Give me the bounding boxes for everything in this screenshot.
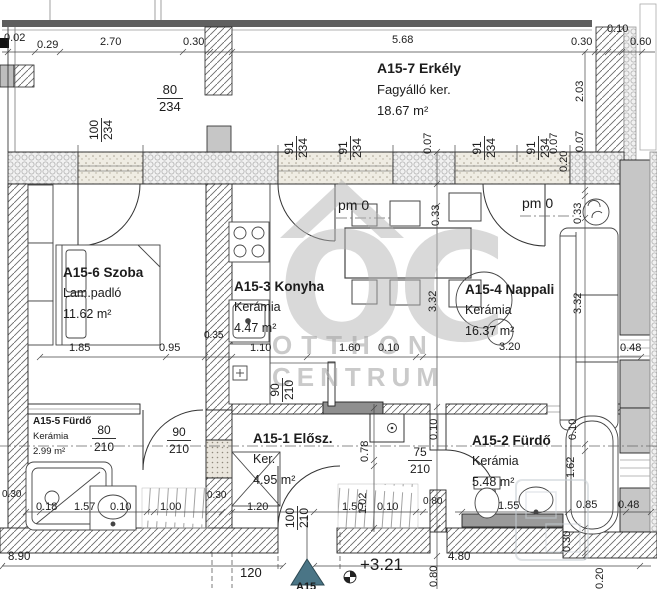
dim-label: 2.03 — [574, 81, 586, 102]
dim-label: 0.10 — [607, 23, 628, 35]
dim-label: 0.29 — [37, 39, 58, 51]
window-size-80-234: 80 234 — [157, 82, 183, 115]
dim-label: 0.10 — [567, 419, 579, 440]
room-label-furdo-b: A15-2 Fürdő Kerámia 5.48 m² — [472, 430, 551, 493]
dim-label: 1.20 — [247, 501, 268, 513]
dim-label: 0.10 — [378, 342, 399, 354]
dim-label: 0.33 — [430, 205, 442, 226]
dim-label: 3.32 — [427, 291, 439, 312]
window-size-100-234: 100 234 — [88, 118, 115, 142]
room-label-szoba: A15-6 Szoba Lam.padló 11.62 m² — [63, 262, 143, 325]
room-area: 16.37 m² — [465, 321, 554, 342]
door-size-90-210-kitchen: 90 210 — [269, 378, 296, 402]
room-finish: Ker. — [253, 449, 333, 470]
dim-label: 1.50 — [342, 501, 363, 513]
dim-total-label: 120 — [240, 565, 262, 580]
opening-width: 100 — [88, 118, 101, 142]
dim-label: 0.07 — [548, 133, 560, 154]
room-label-erkely: A15-7 Erkély Fagyálló ker. 18.67 m² — [377, 58, 461, 121]
dim-label: 0.18 — [36, 501, 57, 513]
room-area: 2.99 m² — [33, 444, 91, 459]
room-label-eloszoba: A15-1 Elősz. Ker. 4.95 m² — [253, 428, 333, 491]
dim-label: 1.57 — [74, 501, 95, 513]
room-name: A15-3 Konyha — [234, 276, 324, 297]
opening-width: 90 — [269, 378, 282, 402]
room-label-furdo-a: A15-5 Fürdő Kerámia 2.99 m² — [33, 414, 91, 459]
opening-width: 75 — [408, 444, 432, 460]
dim-label: 5.68 — [392, 34, 413, 46]
level-pm0-right: pm 0 — [522, 195, 553, 211]
opening-height: 234 — [350, 136, 364, 160]
opening-width: 91 — [525, 136, 538, 160]
opening-height: 210 — [167, 440, 191, 457]
dim-label: 3.32 — [572, 293, 584, 314]
door-size-75-210: 75 210 — [408, 444, 432, 477]
room-name: A15-7 Erkély — [377, 58, 461, 79]
dim-label: 3.20 — [499, 341, 520, 353]
room-label-nappali: A15-4 Nappali Kerámia 16.37 m² — [465, 279, 554, 342]
dim-label: 0.20 — [594, 568, 606, 589]
room-name: A15-2 Fürdő — [472, 430, 551, 451]
floor-plan-canvas: OC OTTHON CENTRUM A15-7 Erkély Fagyálló … — [0, 0, 657, 589]
dim-label: 0.10 — [428, 419, 440, 440]
dim-label: 0.07 — [574, 131, 586, 152]
watermark-line2: CENTRUM — [272, 362, 444, 393]
opening-height: 234 — [101, 118, 115, 142]
level-entry: +3.21 — [360, 555, 403, 575]
dim-label: 0.10 — [110, 501, 131, 513]
dim-label: 0.30 — [571, 36, 592, 48]
dim-label: 1.85 — [69, 342, 90, 354]
opening-height: 234 — [484, 136, 498, 160]
opening-height: 234 — [296, 136, 310, 160]
level-marker — [344, 571, 356, 583]
opening-height: 210 — [297, 506, 311, 530]
level-pm0-left: pm 0 — [338, 197, 369, 213]
room-name: A15-1 Elősz. — [253, 428, 333, 449]
dim-label: 0.07 — [422, 133, 434, 154]
window-size-91-234-3: 91 234 — [471, 136, 498, 160]
room-finish: Kerámia — [465, 300, 554, 321]
dim-label: 0.35 — [204, 330, 223, 341]
room-area: 4.47 m² — [234, 318, 324, 339]
dim-label: 0.10 — [377, 501, 398, 513]
opening-width: 80 — [92, 422, 116, 438]
room-finish: Fagyálló ker. — [377, 79, 461, 100]
dim-label: 0.80 — [428, 566, 440, 587]
dim-label: 0.60 — [630, 36, 651, 48]
dim-label: 0.80 — [423, 496, 442, 507]
section-marker-label: A15 — [296, 581, 316, 589]
room-name: A15-5 Fürdő — [33, 414, 91, 429]
dim-label: 1.62 — [565, 457, 577, 478]
dim-label: 0.85 — [576, 499, 597, 511]
dim-label: 1.10 — [250, 342, 271, 354]
opening-height: 210 — [408, 460, 432, 477]
opening-width: 90 — [167, 424, 191, 440]
dim-label: 1.60 — [339, 342, 360, 354]
furniture-bath-a — [26, 462, 208, 530]
dim-label: 0.30 — [207, 490, 226, 501]
window-size-91-234-1: 91 234 — [283, 136, 310, 160]
room-finish: Lam.padló — [63, 283, 143, 304]
dim-label: 0.30 — [561, 531, 573, 552]
dim-label: 0.33 — [572, 203, 584, 224]
room-finish: Kerámia — [33, 429, 91, 444]
dim-label: 0.30 — [183, 36, 204, 48]
dim-label: 2.70 — [100, 36, 121, 48]
dim-label: 0.02 — [4, 32, 25, 44]
opening-width: 80 — [157, 82, 183, 98]
room-area: 18.67 m² — [377, 100, 461, 121]
door-size-80-210: 80 210 — [92, 422, 116, 455]
dim-label: 0.48 — [618, 499, 639, 511]
dim-label: 1.00 — [160, 501, 181, 513]
opening-width: 91 — [471, 136, 484, 160]
dim-label: 1.55 — [498, 500, 519, 512]
room-name: A15-6 Szoba — [63, 262, 143, 283]
room-area: 11.62 m² — [63, 304, 143, 325]
dim-label: 0.48 — [620, 342, 641, 354]
dim-total-label: 8.90 — [8, 551, 30, 563]
dim-label: 0.30 — [2, 489, 21, 500]
door-size-90-210: 90 210 — [167, 424, 191, 457]
opening-height: 234 — [157, 98, 183, 115]
opening-height: 210 — [282, 378, 296, 402]
window-size-91-234-2: 91 234 — [337, 136, 364, 160]
room-finish: Kerámia — [234, 297, 324, 318]
room-name: A15-4 Nappali — [465, 279, 554, 300]
room-label-konyha: A15-3 Konyha Kerámia 4.47 m² — [234, 276, 324, 339]
dim-label: 0.95 — [159, 342, 180, 354]
opening-width: 91 — [337, 136, 350, 160]
opening-width: 91 — [283, 136, 296, 160]
opening-width: 100 — [284, 506, 297, 530]
opening-height: 210 — [92, 438, 116, 455]
room-finish: Kerámia — [472, 451, 551, 472]
dim-total-label: 4.80 — [448, 551, 470, 563]
dim-label: 0.78 — [359, 441, 371, 462]
room-area: 4.95 m² — [253, 470, 333, 491]
room-area: 5.48 m² — [472, 472, 551, 493]
door-size-100-210: 100 210 — [284, 506, 311, 530]
